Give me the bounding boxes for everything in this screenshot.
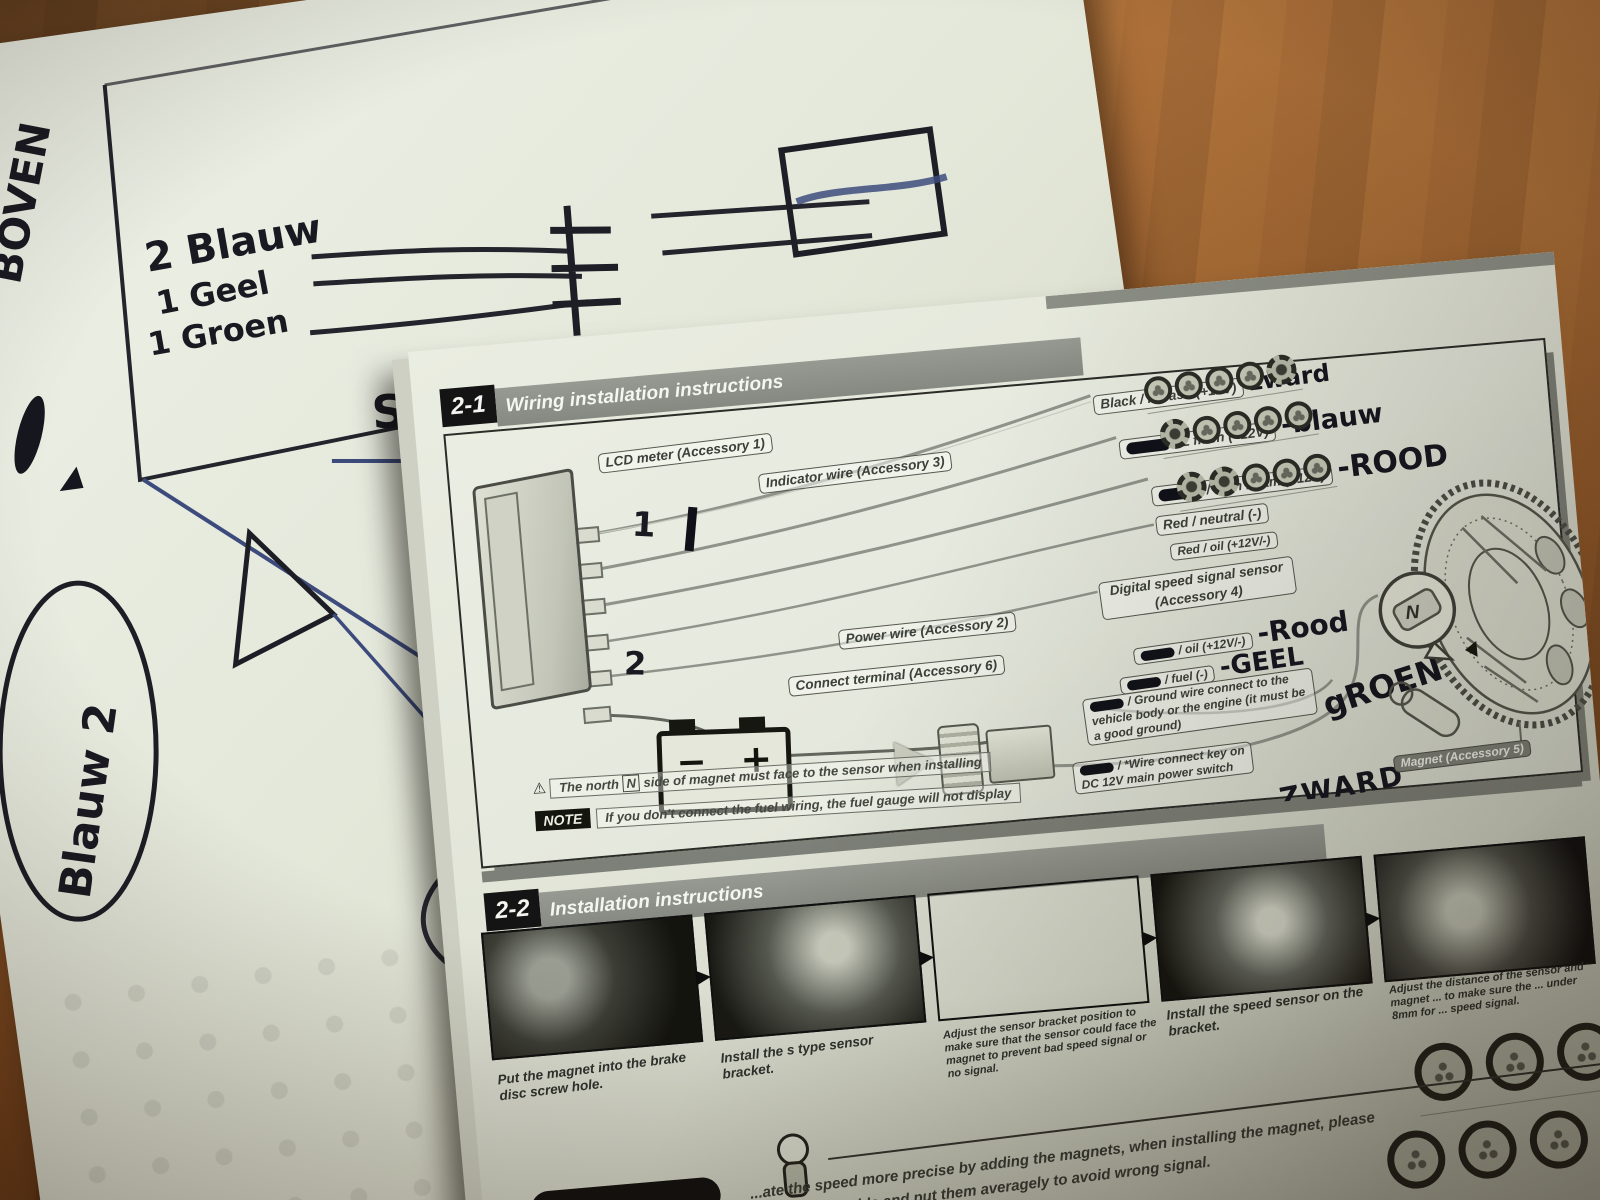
section-2-1-number: 2-1 [439,385,497,428]
lcd-meter-drawing [472,468,592,711]
bolt-icon [1301,452,1333,484]
bolt-icon [1221,409,1253,441]
bolt-icon [1283,399,1315,431]
bolt-icon [1203,365,1235,397]
bolt-icon [1142,374,1174,406]
wire-key-on-dc: DC 12V [1081,773,1124,792]
bolt-icon [1173,369,1205,401]
step-arrow-icon: ▶ [694,963,712,989]
magnet-gear-icon [1174,470,1208,504]
meter-face [484,492,534,692]
magnet-gear-icon [1207,464,1241,498]
step-photo-1 [481,914,703,1060]
bolt-icon [1234,360,1266,392]
battery-terminal-left [669,719,695,732]
battery-terminal-right [739,717,765,730]
step-photo-2 [704,895,926,1041]
bolt-icon [1240,462,1272,494]
bolt-icon [1191,414,1223,446]
section-2-2-number: 2-2 [483,889,541,932]
step-photo-3 [927,875,1149,1021]
brake-disc-drawing: N [1357,443,1600,775]
plug-body [985,724,1055,784]
note-label-box: NOTE [535,808,591,831]
hand-mark-2: 2 [624,644,647,682]
warning-icon: ⚠ [532,780,546,798]
warning-n: N [622,774,640,792]
magnet-gear-icon [1158,417,1192,451]
step-photo-5 [1373,836,1595,982]
step-arrow-icon: ▶ [1364,904,1382,930]
footer-black-bar [530,1176,722,1200]
manual-page: 2-1Wiring installation instructions [408,252,1600,1200]
hand-mark-1: 1 [631,505,657,546]
bolt-icon [1271,457,1303,489]
step-photo-4 [1150,856,1372,1002]
photo-scene: 2 Blauw 1 Geel 1 Groen BOVEN S Blauw 2 2… [0,0,1600,1200]
bolt-icon [1252,404,1284,436]
magnet-gear-icon [1264,353,1298,387]
step-arrow-icon: ▶ [1141,924,1159,950]
wiring-diagram: LCD meter (Accessory 1) Indicator wire (… [443,338,1583,869]
step-arrow-icon: ▶ [918,943,936,969]
warning-pre: The north [559,777,620,796]
bolt-magnet-icon [1482,1029,1548,1095]
bolt-magnet-icon [1553,1019,1600,1085]
